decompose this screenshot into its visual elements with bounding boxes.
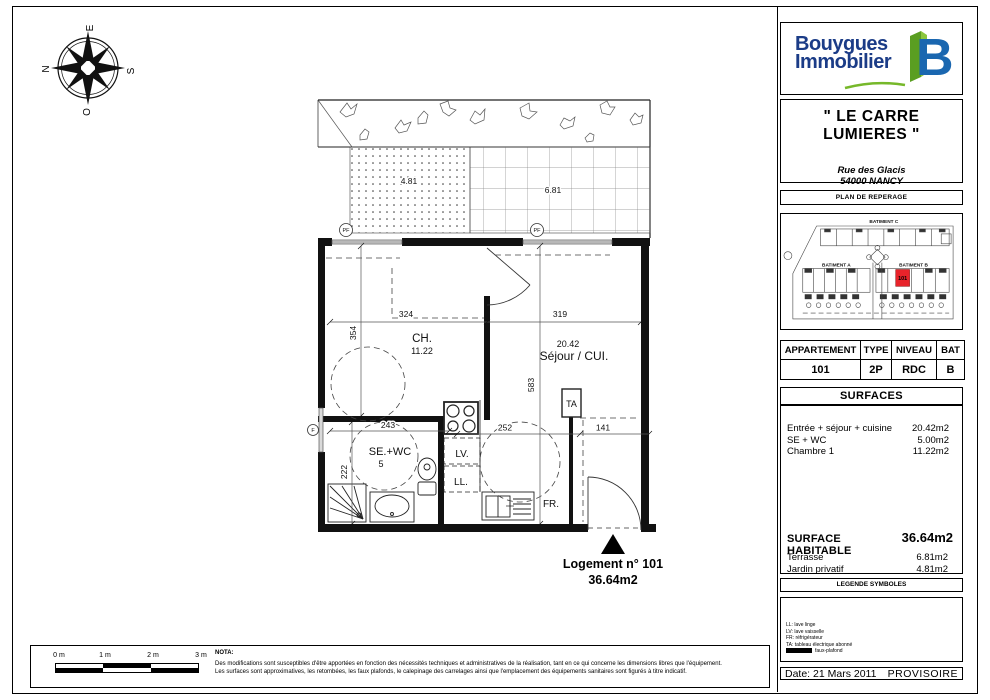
dim-354: 354 (348, 326, 358, 340)
brand-b-letter: B (916, 29, 952, 85)
washer-label: LL. (454, 477, 468, 488)
col-appartement: APPARTEMENT (781, 341, 861, 359)
col-bat: BAT (937, 341, 964, 359)
dim-252: 252 (498, 423, 512, 433)
surface-label: SE + WC (787, 435, 826, 447)
electrical-panel: TA (562, 389, 581, 417)
surfaces-header: SURFACES (780, 387, 963, 405)
brand-logo: Bouygues Immobilier (795, 35, 891, 71)
scale-2m: 2 m (147, 652, 159, 659)
surface-value: 11.22m2 (913, 446, 949, 458)
apartment-table: APPARTEMENT TYPE NIVEAU BAT 101 2P RDC B (780, 340, 965, 380)
terrasse-value: 6.81m2 (916, 552, 948, 564)
washbasin (370, 492, 414, 522)
compass-rose-icon: E S O N (41, 24, 137, 116)
garden-area-label: 4.81 (401, 176, 418, 186)
site-map-unit-101-label: 101 (898, 276, 907, 282)
panel-separator (777, 6, 778, 692)
surface-value: 5.00m2 (917, 435, 949, 447)
fauxplafond-label: faux-plafond (815, 648, 843, 654)
surface-habitable-value: 36.64m2 (902, 530, 953, 545)
project-address: Rue des Glacis 54000 NANCY (781, 165, 962, 187)
window-pf-2-label: PF (533, 228, 541, 234)
date-label: Date: 21 Mars 2011 (785, 668, 876, 680)
logo-box: Bouygues Immobilier B (780, 22, 963, 95)
bathroom-area: 5 (378, 459, 383, 469)
status-label: PROVISOIRE (888, 668, 958, 680)
living-area: 20.42 (557, 339, 580, 349)
unit-area-label: 36.64m2 (588, 573, 637, 587)
scale-1m: 1 m (99, 652, 111, 659)
surface-label: Entrée + séjour + cuisine (787, 423, 892, 435)
batiment-a-label: BATIMENT A (822, 263, 851, 269)
legend-item-fauxplafond: faux-plafond (786, 648, 852, 655)
batiment-b-label: BATIMENT B (899, 263, 928, 269)
drawing-sheet: E S O N 4.81 (0, 0, 990, 700)
terrasse-label: Terrasse (787, 552, 823, 564)
compass-east-label: E (85, 24, 96, 31)
legend-header: LEGENDE SYMBOLES (780, 578, 963, 592)
val-niveau: RDC (892, 359, 937, 379)
electrical-panel-label: TA (566, 399, 577, 409)
jardin-value: 4.81m2 (916, 564, 948, 576)
jardin-row: Jardin privatif 4.81m2 (781, 564, 962, 576)
val-appartement: 101 (781, 359, 861, 379)
dim-141: 141 (596, 423, 610, 433)
site-map-box: 101 BATIMENT C BATIMENT A BATIMENT B (780, 213, 963, 330)
toilet (418, 458, 436, 495)
project-title: " LE CARRE LUMIERES " (781, 108, 962, 144)
scale-bar-graphic (55, 663, 199, 673)
dishwasher-label: LV. (455, 449, 468, 460)
batiment-c-label: BATIMENT C (869, 219, 898, 225)
dim-243: 243 (381, 420, 395, 430)
fauxplafond-swatch (786, 648, 812, 653)
site-map-header: PLAN DE REPERAGE (780, 190, 963, 205)
col-type: TYPE (861, 341, 892, 359)
nota-line2: Les surfaces sont approximatives, les re… (215, 668, 763, 677)
nota-box: 0 m 1 m 2 m 3 m NOTA: Des modifications … (30, 645, 770, 688)
bedroom-label: CH. (412, 333, 432, 345)
nota-text: NOTA: Des modifications sont susceptible… (215, 649, 763, 677)
private-garden-area: 4.81 (350, 147, 470, 233)
living-label: Séjour / CUI. (540, 349, 609, 363)
compass-west-label: O (82, 108, 93, 116)
bedroom-area: 11.22 (411, 346, 433, 356)
unit-label: Logement n° 101 (563, 557, 663, 571)
bathroom-label: SE.+WC (369, 446, 412, 458)
nota-line1: Des modifications sont susceptibles d'êt… (215, 660, 763, 669)
surfaces-box: Entrée + séjour + cuisine 20.42m2 SE + W… (780, 405, 963, 574)
terrasse-row: Terrasse 6.81m2 (781, 552, 962, 564)
floor-plan-canvas: E S O N 4.81 (0, 0, 775, 700)
nota-title: NOTA: (215, 649, 763, 658)
val-bat: B (937, 359, 964, 379)
terrace-area-label: 6.81 (545, 185, 562, 195)
dim-319: 319 (553, 309, 567, 319)
dim-222: 222 (339, 465, 349, 479)
surface-row: SE + WC 5.00m2 (781, 435, 962, 447)
unit-marker: Logement n° 101 36.64m2 (563, 534, 663, 587)
date-box: Date: 21 Mars 2011 PROVISOIRE (780, 667, 963, 680)
walls (318, 238, 656, 532)
compass-north-label: N (41, 65, 52, 72)
legend-box: LL: lave linge LV: lave vaisselle FR: ré… (780, 597, 963, 662)
scale-3m: 3 m (195, 652, 207, 659)
compass-south-label: S (126, 67, 137, 74)
address-line2: 54000 NANCY (781, 176, 962, 187)
scale-bar: 0 m 1 m 2 m 3 m (55, 652, 225, 673)
window-pf-1-label: PF (342, 228, 350, 234)
jardin-label: Jardin privatif (787, 564, 844, 576)
surface-row: Chambre 1 11.22m2 (781, 446, 962, 458)
shower (328, 484, 366, 522)
terrace-area: 6.81 (470, 147, 650, 233)
address-line1: Rue des Glacis (781, 165, 962, 176)
fridge-label: FR. (543, 499, 559, 510)
brand-line2: Immobilier (795, 53, 891, 71)
project-title-box: " LE CARRE LUMIERES " Rue des Glacis 540… (780, 99, 963, 183)
surface-value: 20.42m2 (912, 423, 949, 435)
site-map: 101 BATIMENT C BATIMENT A BATIMENT B (781, 214, 961, 328)
dim-583: 583 (526, 378, 536, 392)
brand-b-icon: B (900, 27, 952, 85)
surface-row: Entrée + séjour + cuisine 20.42m2 (781, 423, 962, 435)
window-f (319, 408, 323, 452)
col-niveau: NIVEAU (892, 341, 937, 359)
logo-swoosh-icon (843, 80, 907, 90)
dashed-guides (326, 255, 638, 522)
val-type: 2P (861, 359, 892, 379)
scale-0m: 0 m (53, 652, 65, 659)
entrance-triangle-icon (601, 534, 625, 554)
sink (482, 492, 534, 520)
surface-label: Chambre 1 (787, 446, 834, 458)
dim-324: 324 (399, 309, 413, 319)
